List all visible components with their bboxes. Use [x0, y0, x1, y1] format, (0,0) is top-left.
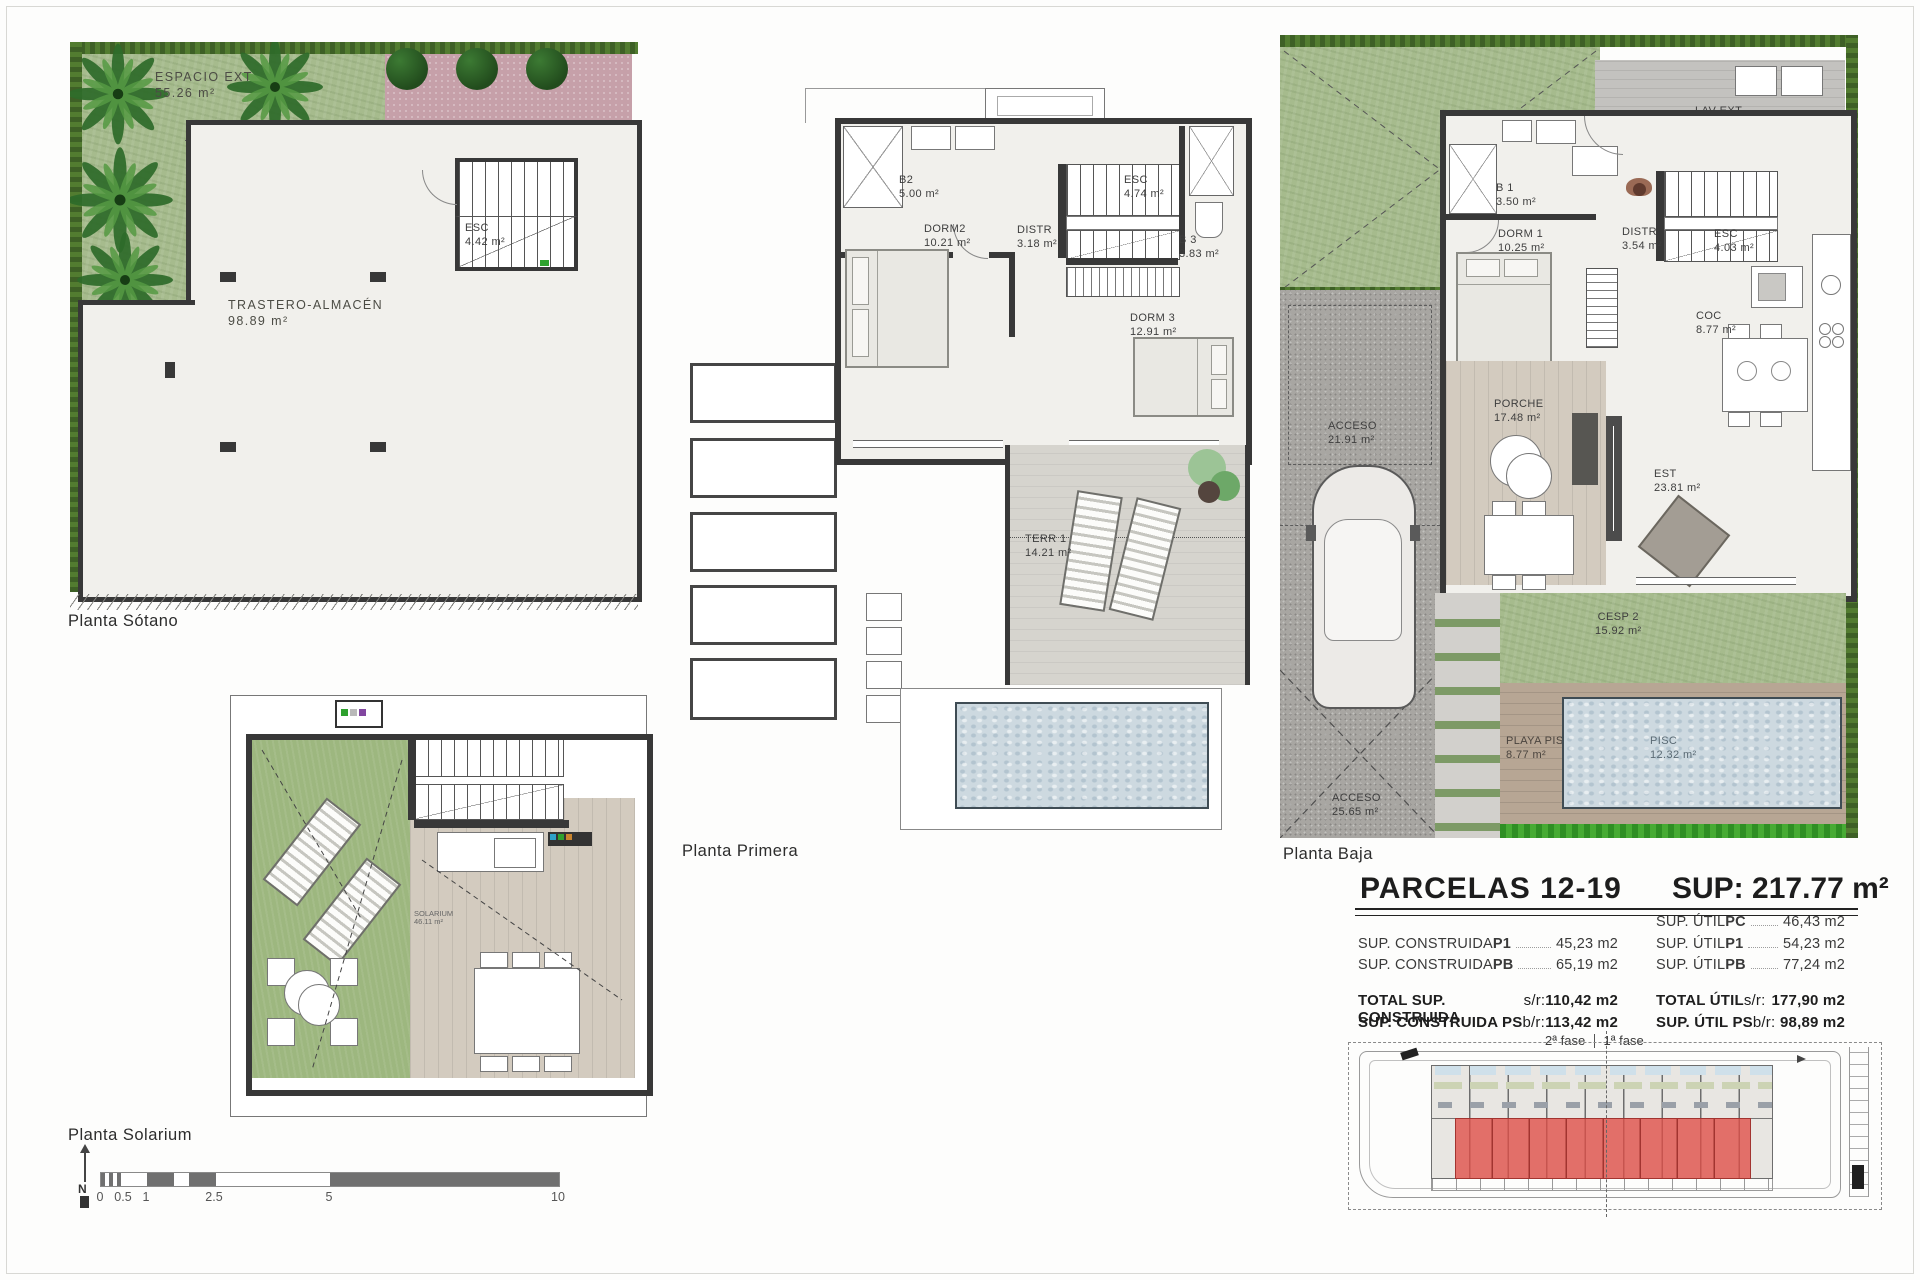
room-name: ACCESO — [1332, 792, 1381, 806]
ghost-step — [866, 593, 902, 621]
unit-roof-strip — [1432, 1102, 1772, 1108]
room-area: 55.26 m² — [155, 86, 253, 102]
row-prefix: SUP. CONSTRUIDA — [1358, 936, 1493, 952]
chair — [1522, 501, 1546, 516]
stair-wall-b — [1066, 258, 1178, 265]
chair — [1492, 575, 1516, 590]
door-arc — [1466, 220, 1499, 253]
dryer — [1781, 66, 1823, 96]
total-value: 98,89 m2 — [1780, 1014, 1845, 1031]
plant — [1198, 481, 1220, 503]
vent-unit — [335, 700, 383, 728]
room-label-esc: ESC 4.74 m² — [1124, 174, 1164, 202]
road-marker — [1852, 1165, 1864, 1189]
housing-block — [1431, 1065, 1773, 1179]
room-area: 15.92 m² — [1595, 625, 1642, 639]
room-label-porche: PORCHE 17.48 m² — [1494, 398, 1543, 426]
room-area: 98.89 m² — [228, 314, 383, 330]
room-area: 12.91 m² — [1130, 326, 1177, 340]
stair-rail — [1066, 216, 1180, 230]
table-util-ps: SUP. ÚTIL PS b/r:98,89 m2 — [1656, 1014, 1845, 1031]
pillar — [220, 272, 236, 282]
room-name: B2 — [899, 174, 939, 188]
table-constr-ps: SUP. CONSTRUIDA PS b/r:113,42 m2 — [1358, 1014, 1618, 1031]
hedge-top — [1280, 35, 1846, 47]
room-name: TRASTERO-ALMACÉN — [228, 298, 383, 314]
room-name: PISC — [1650, 735, 1697, 749]
room-name: ESC — [465, 222, 505, 236]
room-label-coc: COC 8.77 m² — [1696, 310, 1736, 338]
room-label-b3: B 3 3.83 m² — [1179, 234, 1219, 262]
driveway: ACCESO 21.91 m² ACCESO 25.65 m² — [1280, 290, 1440, 838]
room-area: 14.21 m² — [1025, 547, 1072, 561]
first-floor-block: B2 5.00 m² DORM2 10.21 m² DISTR 3.18 m² … — [835, 118, 1252, 465]
row-value: 54,23 m2 — [1783, 936, 1845, 952]
total-label: SUP. ÚTIL PS — [1656, 1014, 1753, 1031]
room-area: 21.91 m² — [1328, 434, 1377, 448]
cesp2-grass: CESP 2 15.92 m² — [1500, 593, 1846, 683]
porch-round-table-2 — [1506, 453, 1552, 499]
caption-sotano: Planta Sótano — [68, 612, 178, 631]
parcel-surface: SUP: 217.77 m² — [1672, 872, 1858, 906]
room-label-solarium: SOLARIUM 46.11 m² — [414, 910, 453, 927]
room-name: CESP 2 — [1595, 611, 1642, 625]
bush — [526, 48, 568, 90]
row-value: 65,19 m2 — [1556, 957, 1618, 973]
phase-centerline — [1606, 1031, 1607, 1217]
room-name: DORM 3 — [1130, 312, 1177, 326]
room-name: COC — [1696, 310, 1736, 324]
total-suffix: b/r: — [1522, 1014, 1544, 1031]
cabinet — [1536, 120, 1576, 144]
row-value: 46,43 m2 — [1783, 914, 1845, 930]
bed-dorm1 — [1456, 252, 1552, 364]
plan-baja: LAV EXT 9.89 m² ACCESO 21.91 m² ACCESO 2… — [1280, 35, 1858, 838]
row-value: 77,24 m2 — [1783, 957, 1845, 973]
sink — [1821, 275, 1841, 295]
site-plan — [1348, 1042, 1882, 1210]
room-label-dorm3: DORM 3 12.91 m² — [1130, 312, 1177, 340]
pergola-slat — [690, 438, 837, 498]
hedge-bottom — [1500, 824, 1846, 838]
porch-deck — [1446, 361, 1606, 585]
row-key: P1 — [1725, 936, 1743, 952]
room-label-esc: ESC 4.42 m² — [465, 222, 505, 250]
kitchen-counter — [1812, 234, 1851, 471]
room-name: DISTR — [1622, 226, 1662, 240]
room-name: EST — [1654, 468, 1701, 482]
room-name: ACCESO — [1328, 420, 1377, 434]
tv-wall — [1606, 416, 1622, 541]
pillar — [165, 362, 175, 378]
shower-b2 — [843, 126, 903, 208]
room-name: PORCHE — [1494, 398, 1543, 412]
row-key: P1 — [1493, 936, 1511, 952]
level-marker — [540, 260, 549, 266]
pillar — [220, 442, 236, 452]
room-area: 3.54 m² — [1622, 240, 1662, 254]
room-area: 3.18 m² — [1017, 238, 1057, 252]
room-name: DORM 1 — [1498, 228, 1545, 242]
caption-solarium: Planta Solarium — [68, 1126, 192, 1145]
row-prefix: SUP. ÚTIL — [1656, 936, 1725, 952]
room-name: ESC — [1124, 174, 1164, 188]
north-label: N — [78, 1182, 87, 1196]
table-total-util: TOTAL ÚTIL s/r:177,90 m2 — [1656, 992, 1845, 1009]
room-label-cesp2: CESP 2 15.92 m² — [1595, 611, 1642, 639]
room-area: 25.65 m² — [1332, 806, 1381, 820]
room-area: 4.42 m² — [465, 236, 505, 250]
total-suffix: s/r: — [1524, 992, 1546, 1009]
pillar — [370, 272, 386, 282]
table-row-constr-p1: SUP. CONSTRUIDA P145,23 m2 — [1358, 936, 1618, 952]
sliding-window — [1636, 577, 1796, 585]
stair-flight-down — [1066, 230, 1180, 260]
highlighted-parcels — [1455, 1118, 1751, 1179]
row-key: PC — [1725, 914, 1746, 930]
total-suffix: b/r: — [1753, 1014, 1775, 1031]
sidewalk — [1431, 1179, 1773, 1191]
chair — [1760, 324, 1782, 339]
chair — [1522, 575, 1546, 590]
room-area: 23.81 m² — [1654, 482, 1701, 496]
room-area: 3.50 m² — [1496, 196, 1536, 210]
room-area: 4.74 m² — [1124, 188, 1164, 202]
unit-garden-strip — [1432, 1082, 1772, 1089]
room-name: B 1 — [1496, 182, 1536, 196]
porch-dining-table — [1484, 515, 1574, 575]
room-area: 8.77 m² — [1696, 324, 1736, 338]
row-prefix: SUP. ÚTIL — [1656, 957, 1725, 973]
shower-b3 — [1189, 126, 1234, 196]
table-row-constr-pb: SUP. CONSTRUIDA PB65,19 m2 — [1358, 957, 1618, 973]
stair-wall — [1058, 164, 1066, 258]
stepping-path — [1435, 593, 1500, 838]
total-value: 113,42 m2 — [1545, 1014, 1618, 1031]
car — [1312, 465, 1416, 709]
porch-bench — [1572, 413, 1598, 485]
room-label-esc: ESC 4.03 m² — [1714, 228, 1754, 256]
pergola-slat — [690, 512, 837, 572]
room-area: 4.03 m² — [1714, 242, 1754, 256]
scale-tick-05: 0.5 — [114, 1190, 131, 1204]
scale-tick-25: 2.5 — [205, 1190, 222, 1204]
plan-solarium: SOLARIUM 46.11 m² — [230, 695, 647, 1117]
total-label: SUP. CONSTRUIDA PS — [1358, 1014, 1522, 1031]
row-prefix: SUP. ÚTIL — [1656, 914, 1725, 930]
washbasin — [955, 126, 995, 150]
row-key: PB — [1493, 957, 1514, 973]
room-label-acceso: ACCESO 21.91 m² — [1328, 420, 1377, 448]
washbasin — [911, 126, 951, 150]
room-label-pisc: PISC 12.32 m² — [1650, 735, 1697, 763]
room-area: 3.83 m² — [1179, 248, 1219, 262]
room-label-distr: DISTR 3.18 m² — [1017, 224, 1057, 252]
chair — [1728, 412, 1750, 427]
table-row-util-p1: SUP. ÚTIL P154,23 m2 — [1656, 936, 1845, 952]
wardrobe — [1586, 268, 1618, 348]
stair-flight-up — [1664, 171, 1778, 217]
room-name: ESC — [1714, 228, 1754, 242]
pergola-slat — [690, 363, 837, 423]
room-label-trastero: TRASTERO-ALMACÉN 98.89 m² — [228, 298, 383, 329]
row-value: 45,23 m2 — [1556, 936, 1618, 952]
washbasin — [1502, 120, 1532, 142]
dining-table — [1722, 338, 1808, 412]
pool: PISC 12.32 m² — [1562, 697, 1842, 809]
room-label-espacio: ESPACIO EXT 55.26 m² — [155, 70, 253, 101]
room-area: 5.00 m² — [899, 188, 939, 202]
person-figure — [1626, 178, 1652, 196]
room-label-distr: DISTR 3.54 m² — [1622, 226, 1662, 254]
wall-patch — [186, 308, 194, 584]
room-label-dorm1: DORM 1 10.25 m² — [1498, 228, 1545, 256]
terrace-terr1: TERR 1 14.21 m² — [1005, 445, 1250, 685]
scale-tick-5: 5 — [326, 1190, 333, 1204]
stair-bulkhead-inner — [997, 96, 1093, 116]
ghost-step — [866, 695, 902, 723]
solarium-building: SOLARIUM 46.11 m² — [246, 734, 653, 1096]
ground-floor-block: B 1 3.50 m² DORM 1 10.25 m² DISTR 3.54 m… — [1440, 110, 1857, 602]
total-suffix: s/r: — [1744, 992, 1766, 1009]
room-label-acceso2: ACCESO 25.65 m² — [1332, 792, 1381, 820]
washer — [1735, 66, 1777, 96]
unit-pools-strip — [1432, 1066, 1772, 1075]
pergola-slat — [690, 658, 837, 720]
room-area: 17.48 m² — [1494, 412, 1543, 426]
bed-dorm2 — [845, 249, 949, 368]
caption-primera: Planta Primera — [682, 842, 798, 861]
plan-sheet: ESPACIO EXT 55.26 m² ESC 4.42 m² TRASTER… — [0, 0, 1920, 1280]
wardrobe — [1066, 267, 1180, 297]
room-area: 10.21 m² — [924, 237, 971, 251]
parcel-title: PARCELAS 12-19 — [1360, 872, 1622, 906]
room-label-b1: B 1 3.50 m² — [1496, 182, 1536, 210]
corridor-wall — [1009, 252, 1015, 337]
ghost-step — [866, 627, 902, 655]
room-name: ESPACIO EXT — [155, 70, 253, 86]
room-label-terr1: TERR 1 14.21 m² — [1025, 533, 1072, 561]
scale-tick-10: 10 — [551, 1190, 565, 1204]
room-area: 10.25 m² — [1498, 242, 1545, 256]
basement-extension — [78, 300, 195, 602]
room-name: DISTR — [1017, 224, 1057, 238]
bed-dorm3 — [1133, 337, 1234, 417]
bush — [456, 48, 498, 90]
room-name: TERR 1 — [1025, 533, 1072, 547]
total-value: 177,90 m2 — [1771, 992, 1845, 1009]
room-name: DORM2 — [924, 223, 971, 237]
total-value: 110,42 m2 — [1545, 992, 1618, 1009]
stair-upper — [455, 158, 578, 220]
total-label: TOTAL ÚTIL — [1656, 992, 1744, 1009]
room-label-b2: B2 5.00 m² — [899, 174, 939, 202]
table-row-util-pb: SUP. ÚTIL PB77,24 m2 — [1656, 957, 1845, 973]
room-area: 12.32 m² — [1650, 749, 1697, 763]
pergola-slat — [690, 585, 837, 645]
ghost-pool — [955, 702, 1209, 809]
scale-bar — [100, 1172, 560, 1187]
plan-sotano: ESPACIO EXT 55.26 m² ESC 4.42 m² TRASTER… — [70, 42, 638, 612]
pillar — [370, 442, 386, 452]
sliding-window — [853, 440, 1003, 448]
row-prefix: SUP. CONSTRUIDA — [1358, 957, 1493, 973]
room-name: B 3 — [1179, 234, 1219, 248]
caption-baja: Planta Baja — [1283, 845, 1373, 864]
room-area: 46.11 m² — [414, 918, 453, 926]
sofa — [1638, 495, 1731, 588]
scale-tick-1: 1 — [143, 1190, 150, 1204]
chair — [1760, 412, 1782, 427]
row-key: PB — [1725, 957, 1746, 973]
shower-b1 — [1449, 144, 1497, 214]
scale-tick-0: 0 — [97, 1190, 104, 1204]
kitchen-island — [1751, 266, 1803, 308]
room-label-est: EST 23.81 m² — [1654, 468, 1701, 496]
table-row-util-pc: SUP. ÚTIL PC46,43 m2 — [1656, 914, 1845, 930]
ghost-step — [866, 661, 902, 689]
room-label-dorm2: DORM2 10.21 m² — [924, 223, 971, 251]
bush — [386, 48, 428, 90]
toilet — [1195, 202, 1223, 238]
chair — [1492, 501, 1516, 516]
ground-hatch — [70, 594, 638, 610]
direction-arrow-icon — [1797, 1055, 1806, 1063]
